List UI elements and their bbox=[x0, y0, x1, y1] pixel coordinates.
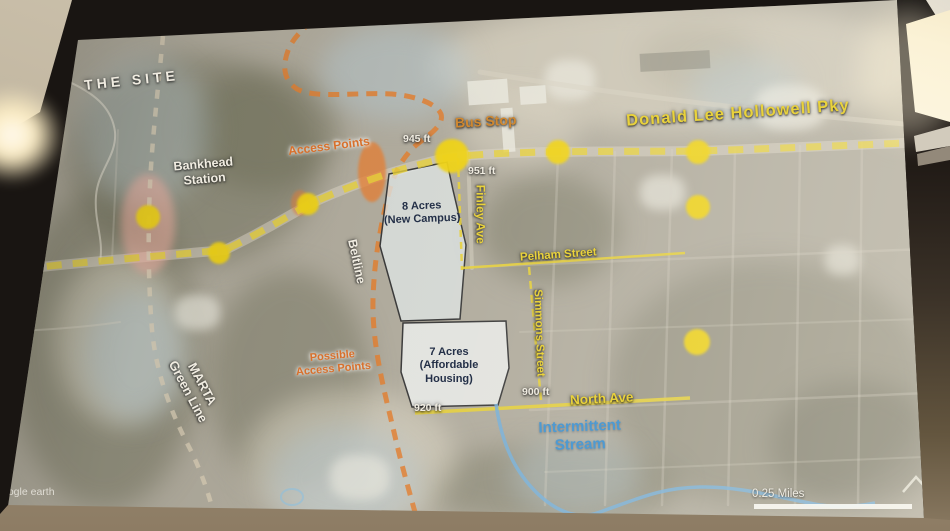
affordable-housing-line3: Housing) bbox=[406, 373, 492, 386]
elevation-900-label: 900 ft bbox=[522, 386, 549, 399]
north-ave-label: North Ave bbox=[570, 389, 634, 409]
projection-screen-photo: THE SITE Bankhead Station Access Points … bbox=[0, 0, 950, 531]
elevation-920-label: 920 ft bbox=[414, 402, 441, 415]
scale-label: 0.25 Miles bbox=[752, 487, 804, 501]
watermark-label: oogle earth bbox=[2, 486, 55, 499]
bus-stop-label: Bus Stop bbox=[455, 111, 517, 131]
intermittent-stream-label: Intermittent Stream bbox=[519, 416, 640, 457]
left-wall-lamp bbox=[0, 86, 64, 184]
affordable-housing-line2: (Affordable bbox=[406, 359, 492, 372]
new-campus-line2: (New Campus) bbox=[381, 212, 463, 228]
affordable-housing-label: 7 Acres (Affordable Housing) bbox=[406, 346, 492, 386]
new-campus-label: 8 Acres (New Campus) bbox=[381, 199, 464, 229]
affordable-housing-line1: 7 Acres bbox=[406, 346, 492, 359]
map-projection: THE SITE Bankhead Station Access Points … bbox=[0, 0, 950, 531]
finley-ave-label: Finley Ave bbox=[473, 166, 488, 262]
elevation-945-label: 945 ft bbox=[403, 133, 430, 146]
